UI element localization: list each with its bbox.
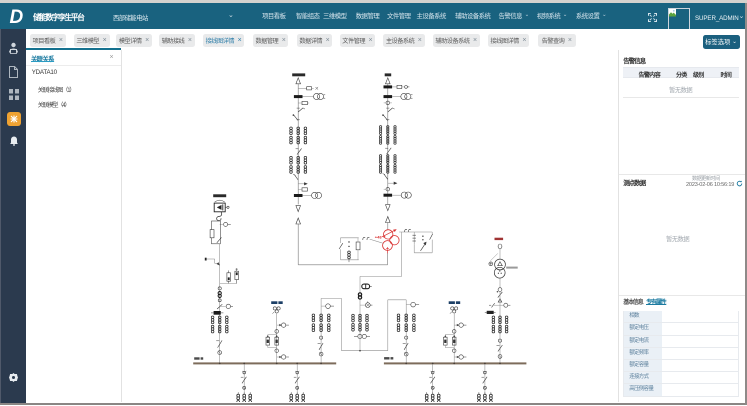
svg-text:+48: +48 (375, 235, 383, 240)
